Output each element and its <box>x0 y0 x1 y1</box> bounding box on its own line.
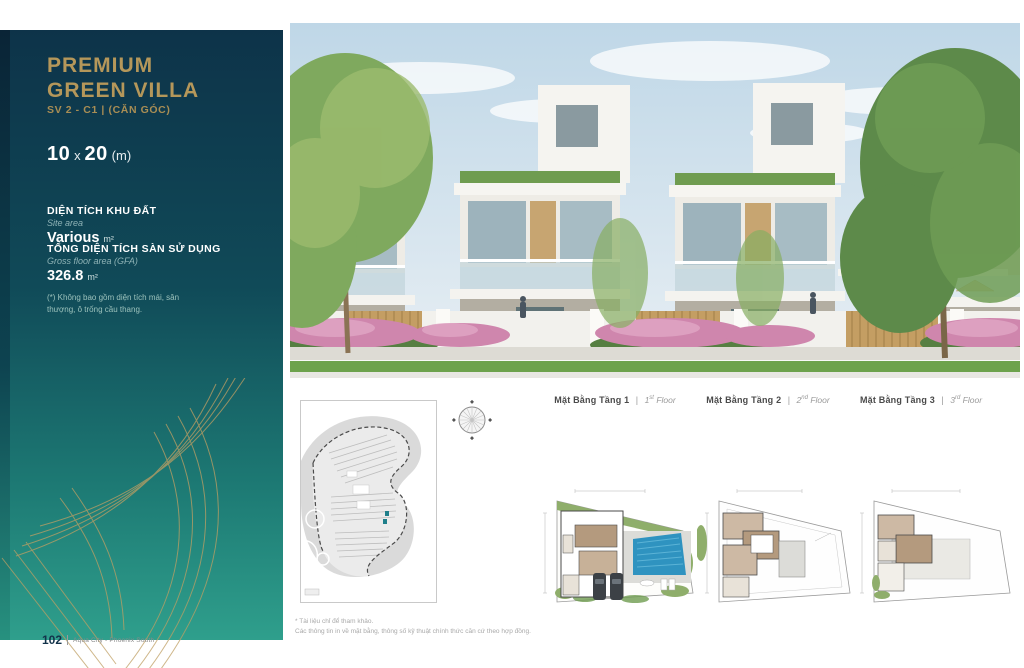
floor-label-3: Mặt Bằng Tầng 3 | 3rd Floor <box>811 390 1024 408</box>
disclaimer: * Tài liệu chỉ để tham khảo. Các thông t… <box>295 617 531 637</box>
footer-divider <box>67 635 68 645</box>
disclaimer-line2: Các thông tin in về mặt bằng, thông số k… <box>295 627 531 637</box>
site-map-graphic <box>301 401 436 602</box>
page-title: PREMIUM GREEN VILLA <box>47 54 199 104</box>
page-number: 102 <box>42 633 62 647</box>
site-map <box>300 400 437 603</box>
gfa-label-en: Gross floor area (GFA) <box>47 256 221 266</box>
lot-length: 20 <box>85 143 108 165</box>
lot-width: 10 <box>47 143 70 165</box>
site-area-label-en: Site area <box>47 218 156 228</box>
gfa-block: TỔNG DIỆN TÍCH SÀN SỬ DỤNG Gross floor a… <box>47 243 221 284</box>
gfa-label-vi: TỔNG DIỆN TÍCH SÀN SỬ DỤNG <box>47 243 221 255</box>
project-name: Aqua City - Phoenix South <box>73 637 154 644</box>
site-area-label-vi: DIỆN TÍCH KHU ĐẤT <box>47 205 156 217</box>
site-area-block: DIỆN TÍCH KHU ĐẤT Site area Various m² <box>47 205 156 246</box>
lot-size-sep: x <box>74 148 81 163</box>
page-footer: 102 Aqua City - Phoenix South <box>42 633 154 647</box>
villa-render-graphic <box>290 23 1020 378</box>
lot-size: 10 x 20 (m) <box>47 143 131 166</box>
villa-rendering <box>290 23 1020 378</box>
gfa-unit: m² <box>87 272 98 282</box>
disclaimer-line1: * Tài liệu chỉ để tham khảo. <box>295 617 531 627</box>
page-title-line2: GREEN VILLA <box>47 79 199 104</box>
compass-icon <box>450 398 494 442</box>
lot-size-unit: (m) <box>112 148 132 163</box>
floorplan-level-3 <box>852 483 1012 628</box>
sidebar-edge-strip <box>0 30 10 640</box>
brochure-page: PREMIUM GREEN VILLA SV 2 - C1 | (CĂN GÓC… <box>0 0 1024 668</box>
floorplan-level-1 <box>535 483 695 628</box>
floorplan-level-2 <box>697 483 852 628</box>
sidebar-panel: PREMIUM GREEN VILLA SV 2 - C1 | (CĂN GÓC… <box>10 30 283 640</box>
page-title-line1: PREMIUM <box>47 54 199 79</box>
sidebar-footnote: (*) Không bao gồm diện tích mái, sân thư… <box>47 292 207 315</box>
gfa-value: 326.8 m² <box>47 268 221 284</box>
unit-code: SV 2 - C1 | (CĂN GÓC) <box>47 104 170 116</box>
